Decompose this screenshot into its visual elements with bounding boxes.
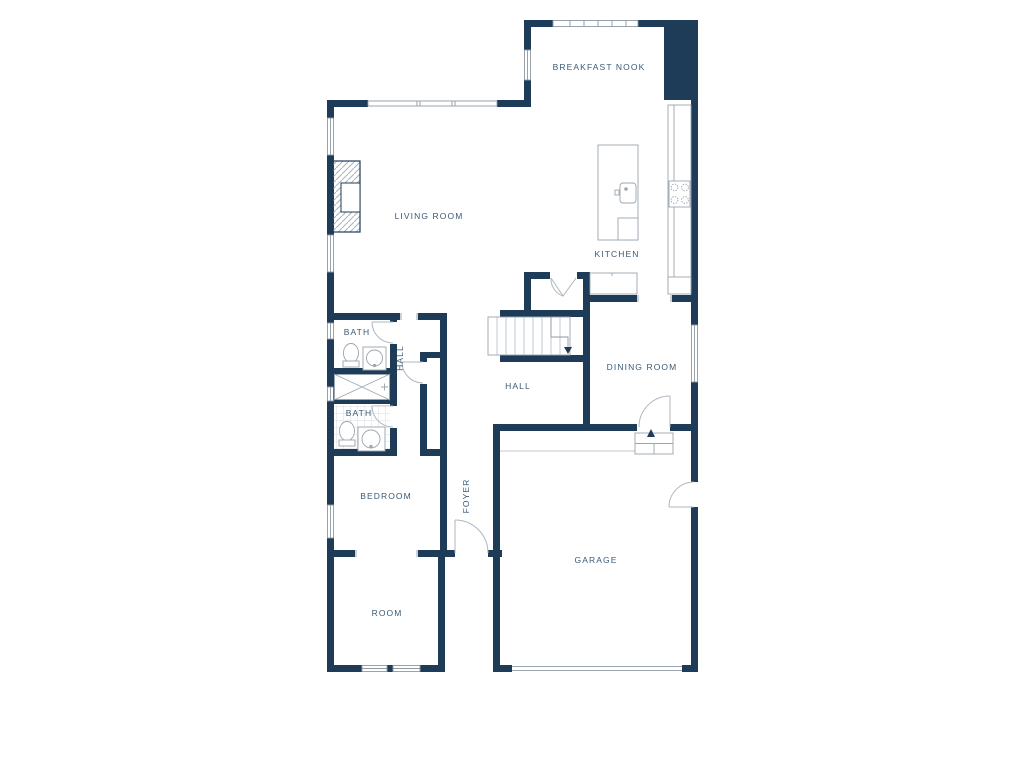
island-sink-icon <box>620 183 636 203</box>
toilet-icon <box>340 422 355 441</box>
opening-hall-corridor <box>401 313 417 320</box>
cooktop-icon <box>669 181 690 207</box>
room-label-hall-upper: HALL <box>395 345 405 371</box>
window-living-west-2 <box>328 235 334 272</box>
bath1-fixtures <box>343 344 386 371</box>
window-living-top-run <box>368 101 497 106</box>
door-garage-side <box>669 482 694 507</box>
door-dining-garage <box>639 396 670 427</box>
sink-drain-icon <box>625 188 628 191</box>
room-label-foyer: FOYER <box>461 479 471 514</box>
room-label-kitchen: KITCHEN <box>594 249 639 259</box>
opening-kitchen-dining <box>638 295 671 302</box>
room-label-dining-room: DINING ROOM <box>607 362 678 372</box>
toilet-tank <box>343 361 359 367</box>
room-label-breakfast-nook: BREAKFAST NOOK <box>553 62 646 72</box>
garage-door <box>512 665 682 672</box>
room-label-living-room: LIVING ROOM <box>395 211 464 221</box>
buffet-counter <box>590 273 637 294</box>
toilet-icon <box>344 344 359 363</box>
window-bedroom-west <box>328 505 334 538</box>
opening-bedroom-room <box>356 550 417 557</box>
dishwasher-icon <box>618 218 638 240</box>
shower-icon <box>334 374 390 400</box>
floor-plan-page: BREAKFAST NOOK LIVING ROOM KITCHEN DININ… <box>0 0 1024 768</box>
chimney-block <box>664 27 691 100</box>
room-label-room: ROOM <box>372 608 403 618</box>
island-faucet-icon <box>615 190 619 195</box>
room-label-hall: HALL <box>505 381 531 391</box>
window-nook-top <box>553 21 638 27</box>
door-bath1 <box>372 322 393 343</box>
garage-details <box>500 429 682 672</box>
counter-appliance <box>668 277 691 294</box>
stairs <box>488 317 572 355</box>
entry-steps <box>635 429 673 454</box>
door-stair-closet-bifold <box>551 278 576 296</box>
room-label-bedroom: BEDROOM <box>360 491 412 501</box>
kitchen-fixtures <box>590 105 691 294</box>
window-dining-right <box>692 325 698 382</box>
window-bath1-west <box>328 323 334 339</box>
window-bath2-west <box>328 387 334 401</box>
window-living-west-1 <box>328 118 334 155</box>
door-hall-closet <box>402 362 423 383</box>
room-label-bath-1: BATH <box>344 327 370 337</box>
fireplace <box>333 161 360 232</box>
room-label-bath-2: BATH <box>346 408 372 418</box>
window-nook-left <box>525 50 531 80</box>
front-door <box>455 520 488 553</box>
room-label-garage: GARAGE <box>575 555 618 565</box>
toilet-tank <box>339 440 355 446</box>
